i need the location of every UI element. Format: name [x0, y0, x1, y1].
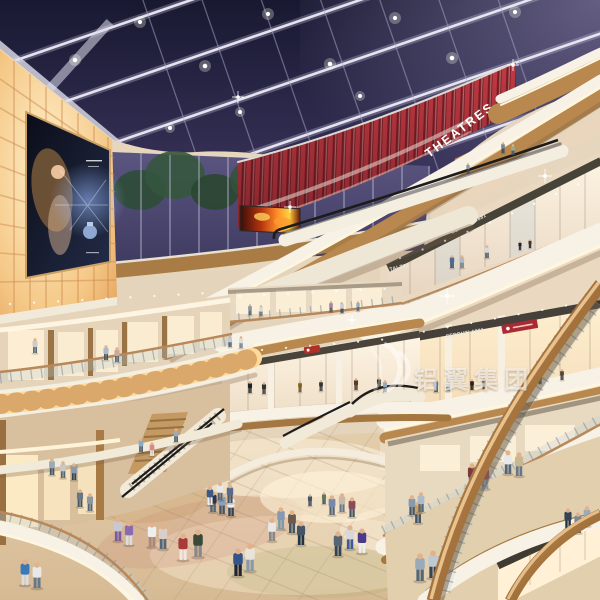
watermark-text: 铝翼集团 [414, 366, 534, 394]
rendering-canvas: THEATRES TAI TAI CERRUTI 1881 TAI TAI CE… [0, 0, 600, 600]
mall-atrium-rendering: THEATRES TAI TAI CERRUTI 1881 TAI TAI CE… [0, 0, 600, 600]
